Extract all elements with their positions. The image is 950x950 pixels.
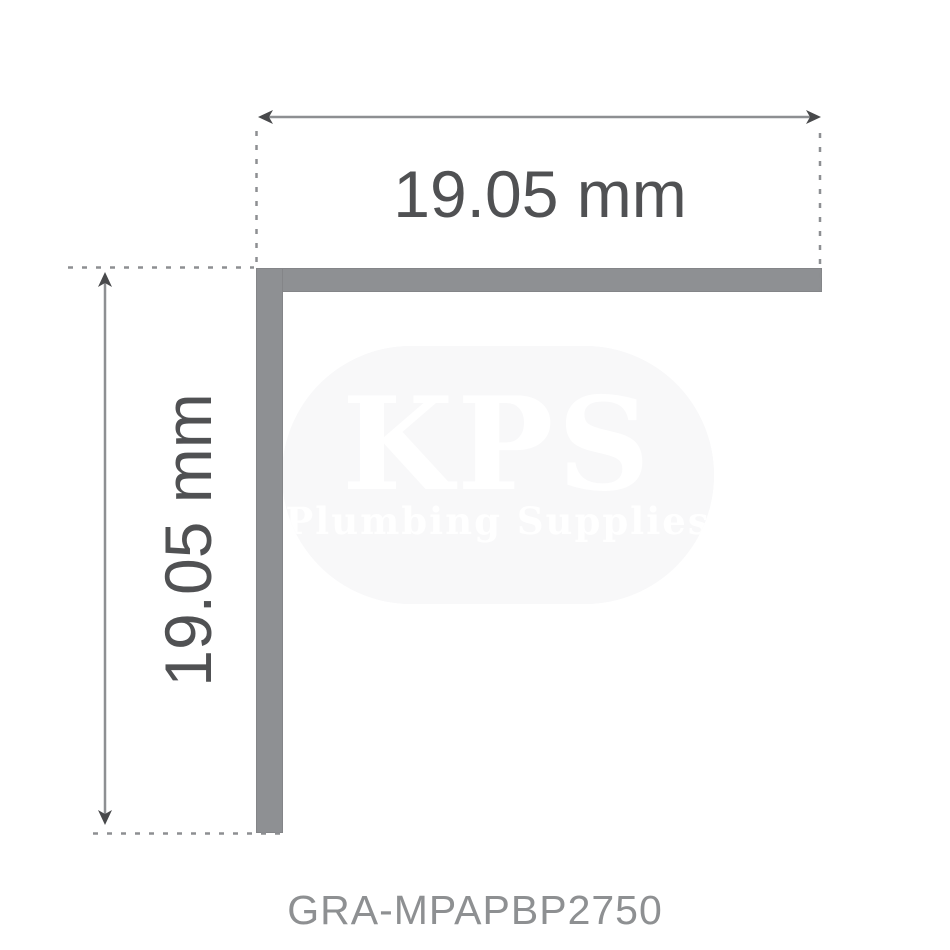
dimension-diagram: KPS Plumbing Supplies 19.05 mm 19.05 mm … xyxy=(0,0,950,950)
top-dimension-label: 19.05 mm xyxy=(259,150,821,238)
left-dimension-label: 19.05 mm xyxy=(144,259,232,821)
product-code: GRA-MPAPBP2750 xyxy=(0,886,950,935)
dimension-lines xyxy=(0,0,950,950)
